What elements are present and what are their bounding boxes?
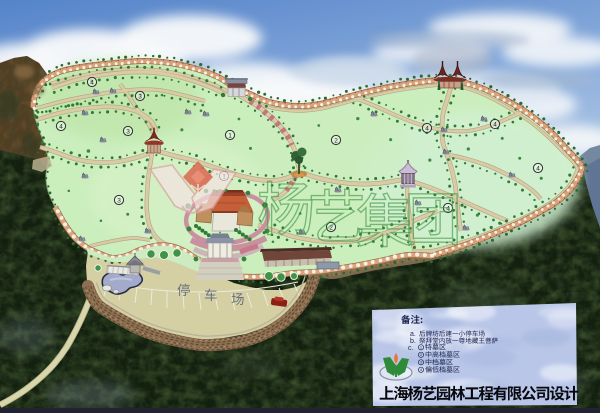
svg-text:4: 4 [90,79,94,86]
svg-text:3: 3 [138,93,142,100]
svg-text:4: 4 [536,165,540,172]
svg-text:3: 3 [117,197,121,204]
svg-text:1: 1 [228,132,232,139]
svg-text:b.: b. [410,338,416,345]
svg-text:4: 4 [59,123,63,130]
svg-text:c.: c. [408,345,414,352]
svg-text:a.: a. [410,331,416,338]
svg-text:2: 2 [334,137,338,144]
svg-text:4: 4 [425,125,429,132]
svg-text:3: 3 [126,128,130,135]
svg-text:4: 4 [493,121,497,128]
